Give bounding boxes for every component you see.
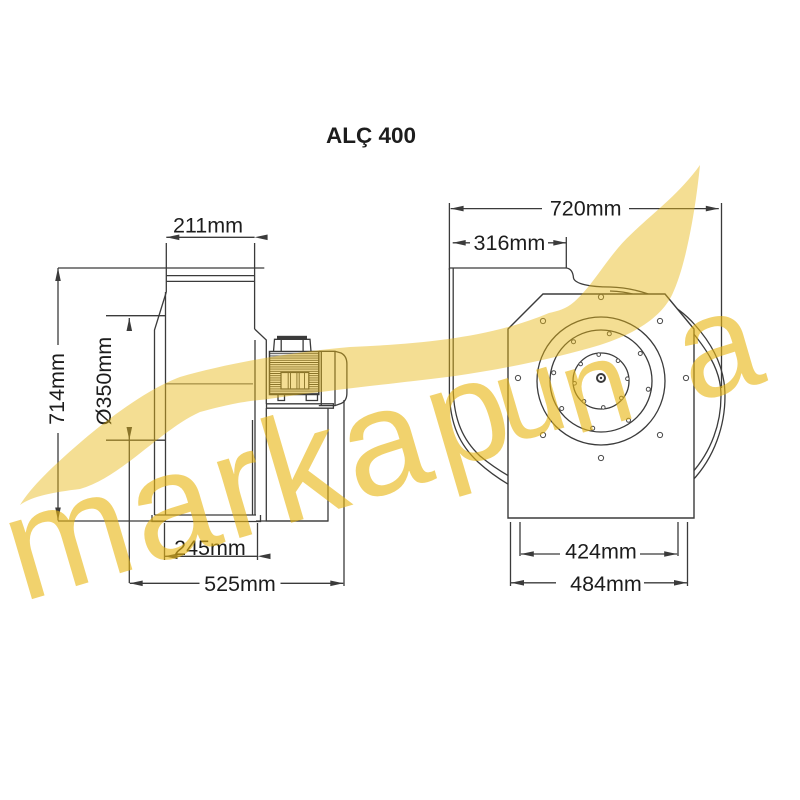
svg-text:Ø350mm: Ø350mm <box>92 337 116 425</box>
svg-text:720mm: 720mm <box>550 197 622 221</box>
svg-text:484mm: 484mm <box>570 572 642 596</box>
svg-text:ALÇ 400: ALÇ 400 <box>326 123 416 148</box>
svg-text:714mm: 714mm <box>45 353 69 425</box>
svg-text:316mm: 316mm <box>474 231 546 255</box>
svg-text:211mm: 211mm <box>173 214 243 238</box>
svg-text:424mm: 424mm <box>565 540 637 564</box>
